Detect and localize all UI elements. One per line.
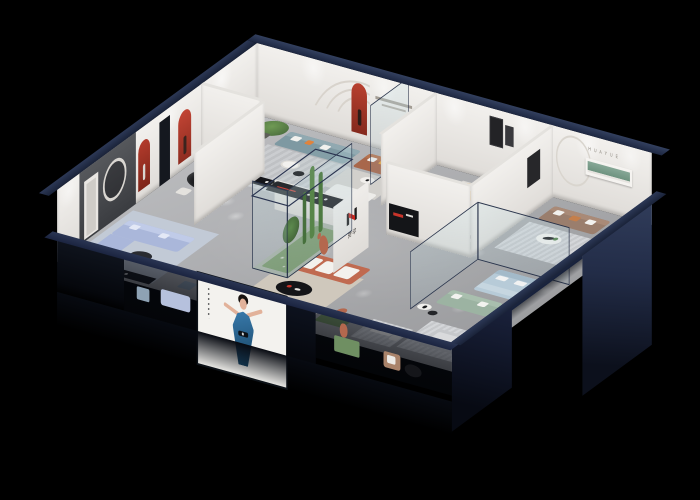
atrium-top-frame — [251, 149, 354, 207]
wall-top-strip — [191, 101, 265, 154]
wall-top-strip — [379, 92, 438, 134]
wall-top-strip — [385, 161, 473, 187]
armchair-cushion — [387, 355, 395, 365]
window-armchair — [383, 351, 400, 372]
roof-band-left — [39, 40, 257, 196]
window-green-cabinet — [334, 335, 359, 358]
belt-buckle — [242, 332, 244, 336]
window-sofa-glimpse — [161, 289, 191, 313]
window-cube-stool — [137, 286, 150, 303]
wall-top-strip — [201, 82, 264, 101]
showroom-render: H U A Y U E — [0, 0, 700, 500]
poster-vertical-text-illegible — [208, 288, 209, 318]
wall-top-strip — [469, 125, 555, 186]
roof-band-back — [247, 34, 670, 155]
window-black-table — [405, 363, 422, 380]
